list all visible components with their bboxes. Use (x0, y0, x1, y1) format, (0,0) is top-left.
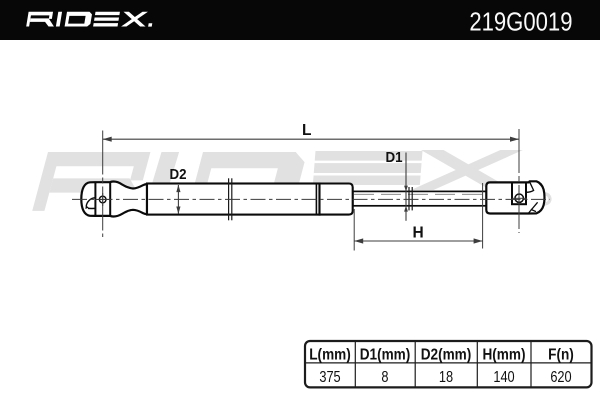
svg-text:8: 8 (381, 369, 388, 387)
svg-text:H: H (413, 224, 424, 241)
svg-text:D1(mm): D1(mm) (360, 346, 411, 363)
svg-text:375: 375 (319, 369, 340, 387)
svg-text:140: 140 (493, 369, 514, 387)
svg-text:D2: D2 (170, 165, 187, 182)
svg-text:F(n): F(n) (548, 346, 574, 363)
svg-text:L(mm): L(mm) (309, 346, 351, 363)
svg-text:D1: D1 (385, 148, 402, 165)
svg-text:H(mm): H(mm) (482, 346, 525, 363)
svg-text:L: L (302, 122, 311, 139)
svg-text:219G0019: 219G0019 (469, 8, 572, 37)
svg-text:620: 620 (550, 369, 571, 387)
svg-text:D2(mm): D2(mm) (421, 346, 472, 363)
svg-text:18: 18 (439, 369, 453, 387)
